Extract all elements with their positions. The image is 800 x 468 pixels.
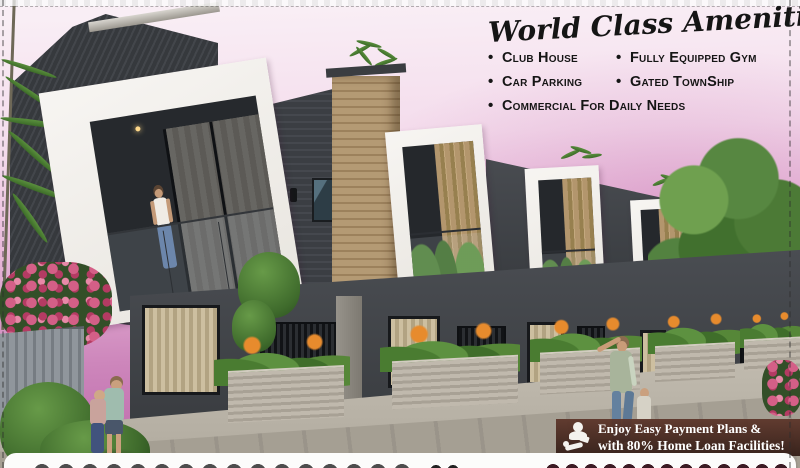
ad-poster: World Class Amenities •Club House •Fully… xyxy=(0,0,800,468)
amenity-item: •Club House xyxy=(488,49,616,66)
bullet-icon: • xyxy=(488,73,502,90)
children-figures xyxy=(88,376,138,458)
cutoff-phone-number xyxy=(544,456,794,468)
home-loan-hand-coins-icon xyxy=(562,422,594,454)
selection-border-top xyxy=(0,6,800,7)
window-curtained xyxy=(142,305,220,395)
amenities-block: World Class Amenities •Club House •Fully… xyxy=(488,8,796,114)
amenity-item: •Gated TownShip xyxy=(616,73,796,90)
amenity-item: •Commercial For Daily Needs xyxy=(488,97,796,114)
amenity-item: •Fully Equipped Gym xyxy=(616,49,796,66)
offer-line-1: Enjoy Easy Payment Plans & xyxy=(598,420,785,438)
planter-box xyxy=(655,342,735,382)
planter-box xyxy=(228,365,344,423)
amenities-list: •Club House •Fully Equipped Gym •Car Par… xyxy=(488,49,796,114)
selection-border-right xyxy=(789,0,791,468)
planter-box xyxy=(392,355,518,410)
bullet-icon: • xyxy=(488,97,502,114)
bullet-icon: • xyxy=(616,73,630,90)
amenities-title: World Class Amenities xyxy=(487,0,796,49)
ceiling-light-icon xyxy=(135,126,141,132)
selection-border-left xyxy=(2,0,4,468)
cutoff-phone-icon xyxy=(429,459,463,468)
amenity-item: •Car Parking xyxy=(488,73,616,90)
offer-banner: Enjoy Easy Payment Plans & with 80% Home… xyxy=(556,419,800,456)
wall-lamp-icon xyxy=(290,188,297,202)
bottom-strip xyxy=(4,453,796,468)
cutoff-script-text xyxy=(32,456,412,468)
offer-text: Enjoy Easy Payment Plans & with 80% Home… xyxy=(598,420,785,456)
balcony-opening xyxy=(402,141,485,290)
flower-bush-pink xyxy=(762,360,800,416)
bullet-icon: • xyxy=(616,49,630,66)
bullet-icon: • xyxy=(488,49,502,66)
